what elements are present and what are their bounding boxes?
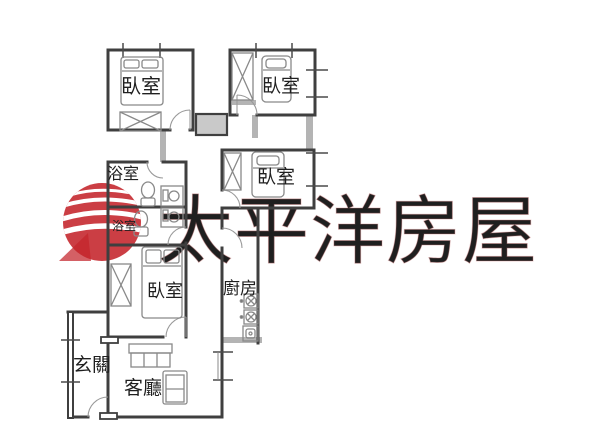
sofa-icon (163, 371, 187, 404)
room-label-entryway: 玄關 (73, 354, 111, 376)
structural-column (196, 114, 227, 135)
room-label-living-room: 客廳 (124, 377, 162, 399)
stove-icon (240, 294, 258, 324)
wardrobe-icon (224, 153, 241, 190)
cabinet-icon (120, 112, 161, 131)
room-label-kitchen: 廚房 (223, 278, 257, 298)
sofa-icon (129, 344, 172, 367)
watermark-brand-text: 太平洋房屋 (158, 189, 538, 273)
door-arc-bathroom-upper (147, 162, 163, 178)
door-arc-bedroom-lower (166, 317, 186, 337)
room-label-bedroom-middle-right: 臥室 (257, 166, 295, 188)
toilet-icon (141, 182, 155, 206)
room-label-bedroom-top-left: 臥室 (121, 75, 161, 98)
wardrobe-icon (232, 53, 253, 100)
room-label-bedroom-top-right: 臥室 (262, 75, 300, 97)
room-label-bedroom-lower: 臥室 (147, 281, 183, 301)
wardrobe-icon (111, 264, 131, 306)
floor-plan-image: 太平洋房屋 (0, 0, 600, 444)
room-label-bathroom-lower: 浴室 (112, 218, 136, 233)
room-label-bathroom-upper: 浴室 (107, 165, 139, 183)
floor-plan-svg: 太平洋房屋 (0, 0, 600, 444)
door-arc-bedroom-top-left (170, 110, 190, 130)
